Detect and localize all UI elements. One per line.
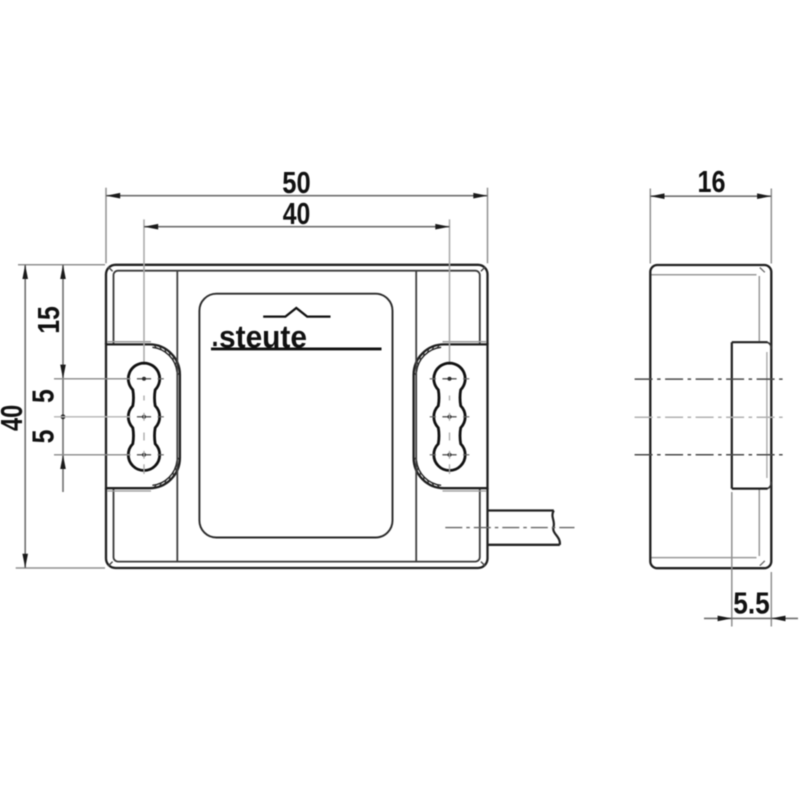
svg-text:40: 40 [0, 405, 29, 431]
svg-text:5: 5 [26, 430, 61, 444]
svg-text:5.5: 5.5 [733, 586, 770, 621]
svg-text:16: 16 [698, 164, 726, 199]
svg-text:50: 50 [282, 165, 310, 200]
svg-text:40: 40 [283, 196, 311, 231]
svg-text:5: 5 [26, 389, 61, 403]
svg-text:15: 15 [31, 306, 66, 334]
